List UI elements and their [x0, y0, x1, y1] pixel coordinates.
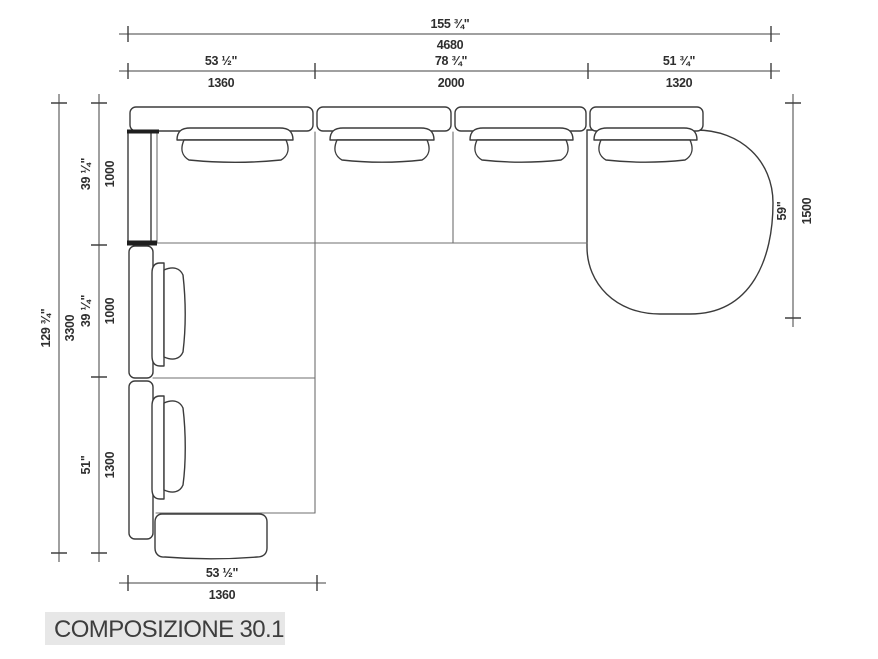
dim-label-in: 78 ¾" — [435, 54, 468, 68]
composition-title: COMPOSIZIONE 30.1 — [54, 616, 284, 643]
left-back-strip-1 — [129, 246, 153, 378]
dim-label-mm: 1500 — [800, 197, 814, 224]
cushion-body — [164, 401, 185, 492]
dim-label-in: 53 ½" — [205, 54, 238, 68]
ottoman — [155, 514, 267, 559]
seat-cushion-4 — [594, 128, 697, 162]
dim-label-in: 39 ¼" — [79, 158, 93, 191]
seat-cushion-1 — [177, 128, 293, 162]
dim-label-mm: 1360 — [208, 76, 235, 90]
dim-label-mm: 1300 — [103, 451, 117, 478]
dim-label-mm: 4680 — [437, 38, 464, 52]
dim-label-mm: 1000 — [103, 160, 117, 187]
sofa-plan-drawing: 155 ¾" 4680 53 ½" 1360 78 ¾" 2000 51 ¾" … — [0, 0, 878, 659]
dim-label-mm: 1320 — [666, 76, 693, 90]
dim-right-depth: 59" 1500 — [775, 94, 814, 327]
cushion-body — [599, 140, 692, 162]
cushion-band — [152, 263, 164, 366]
cushion-body — [475, 140, 568, 162]
cushion-body — [182, 140, 288, 162]
dim-top-segments: 53 ½" 1360 78 ¾" 2000 51 ¾" 1320 — [119, 54, 780, 90]
dim-label-in: 39 ¼" — [79, 295, 93, 328]
seat-cushion-2 — [330, 128, 434, 162]
dim-label-in: 59" — [775, 201, 789, 220]
left-back-strip-2 — [129, 381, 153, 539]
title-block: COMPOSIZIONE 30.1 — [45, 612, 285, 645]
dim-label-mm: 1360 — [209, 588, 236, 602]
junction-bar-corner — [127, 241, 157, 246]
dim-label-in: 129 ¾" — [39, 308, 53, 347]
seat-cushion-6 — [152, 396, 185, 499]
dim-label-in: 51 ¾" — [663, 54, 696, 68]
dim-label-mm: 1000 — [103, 297, 117, 324]
cushion-band — [152, 396, 164, 499]
cushion-body — [335, 140, 429, 162]
seat-cushion-5 — [152, 263, 185, 366]
dim-label-mm: 3300 — [63, 314, 77, 341]
dim-label-in: 51" — [79, 455, 93, 474]
technical-drawing-page: 155 ¾" 4680 53 ½" 1360 78 ¾" 2000 51 ¾" … — [0, 0, 878, 659]
cushion-body — [164, 268, 185, 359]
cushion-band — [594, 128, 697, 140]
seat-cushion-3 — [470, 128, 573, 162]
cushion-band — [470, 128, 573, 140]
dim-overall-depth: 129 ¾" 3300 — [39, 94, 77, 562]
cushion-band — [330, 128, 434, 140]
junction-bar-top — [127, 130, 159, 134]
sofa-plan — [127, 107, 773, 559]
dim-bottom-width: 53 ½" 1360 — [119, 566, 326, 602]
dim-left-segments: 39 ¼" 1000 39 ¼" 1000 51" 1300 — [79, 94, 117, 562]
dim-label-in: 53 ½" — [206, 566, 239, 580]
cushion-band — [177, 128, 293, 140]
dim-overall-width: 155 ¾" 4680 — [119, 17, 780, 52]
left-arm-strip — [128, 131, 151, 243]
dim-label-mm: 2000 — [438, 76, 465, 90]
dim-label-in: 155 ¾" — [431, 17, 470, 31]
